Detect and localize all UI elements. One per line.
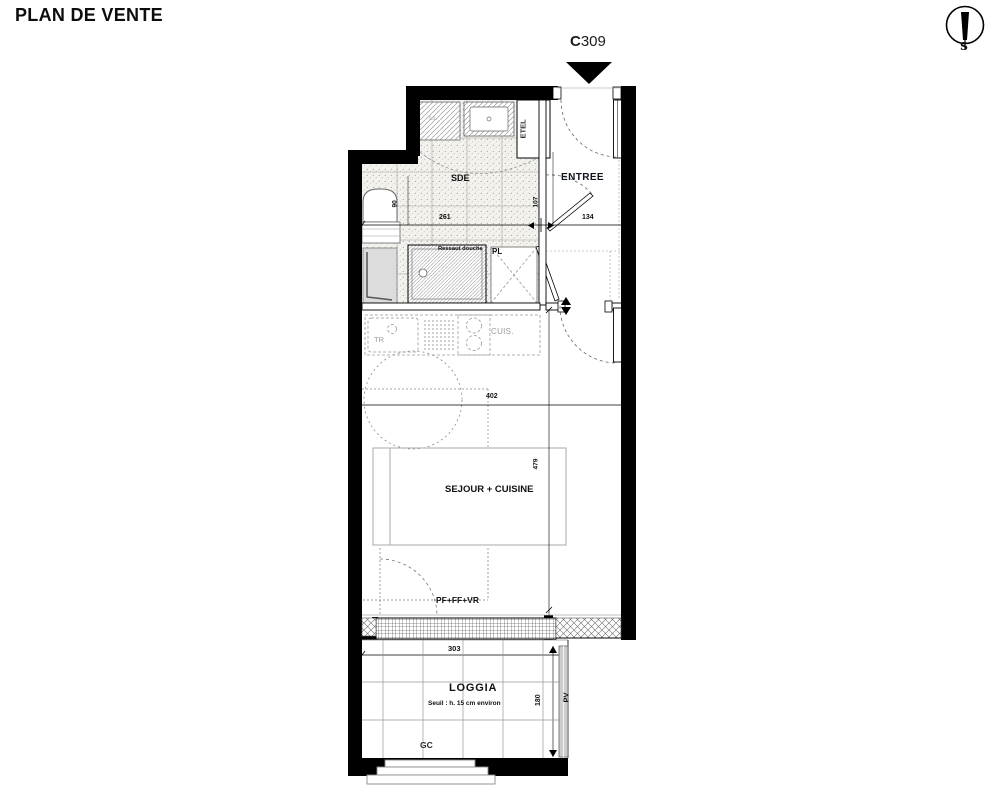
dimension-sejour-depth: 479	[534, 459, 541, 470]
unit-label: C309	[570, 34, 606, 49]
entrance-door-frame-left	[553, 87, 561, 99]
unit-entrance-triangle	[566, 62, 612, 84]
unit-prefix: C	[570, 33, 581, 50]
room-label-sejour-cuisine: SEJOUR + CUISINE	[445, 485, 533, 495]
dimension-sejour-width: 402	[486, 393, 498, 400]
window-band	[376, 618, 556, 639]
dimension-sde-width: 261	[439, 214, 451, 221]
wall-hatch-left	[362, 618, 376, 636]
entrance-door	[561, 100, 622, 158]
dimension-entree-depth: 107	[534, 197, 541, 208]
plan-de-vente-page: PLAN DE VENTE C309 S SDE ENTREE SEJOUR +…	[0, 0, 992, 800]
compass-south-label: S	[960, 41, 968, 52]
kitchen-zone-boundary	[362, 389, 488, 448]
wall-hatch-right	[556, 618, 621, 638]
shower-screen-panel	[363, 248, 397, 303]
table	[364, 351, 462, 449]
dimension-loggia-depth: 180	[535, 694, 542, 706]
loggia-threshold-note: Seuil : h. 15 cm environ	[428, 701, 501, 708]
wc-toilet	[362, 189, 400, 243]
washing-machine-label: LL	[429, 114, 437, 122]
dimension-wc-width: 90	[393, 200, 400, 207]
guardrail-label: GC	[420, 741, 433, 750]
dimension-entree-width: 134	[582, 214, 594, 221]
sejour-door	[560, 306, 622, 363]
privacy-screen-label: PV	[563, 692, 571, 702]
room-label-sde: SDE	[451, 174, 470, 183]
washing-machine-box	[417, 102, 460, 140]
shower-tray	[408, 245, 486, 303]
room-label-entree: ENTREE	[561, 173, 604, 183]
window-type-label: PF+FF+VR	[436, 596, 479, 605]
shower-step-label: Ressaut douche	[438, 247, 483, 253]
entrance-door-frame-right	[613, 87, 621, 99]
room-label-loggia: LOGGIA	[449, 683, 497, 694]
page-title: PLAN DE VENTE	[15, 6, 163, 24]
closet-label: PL	[492, 248, 502, 256]
kitchen-unit-label: CUIS.	[491, 328, 514, 336]
technical-duct-label: ETEL	[520, 119, 528, 138]
dimension-loggia-width: 303	[448, 645, 461, 653]
sorting-bin-label: TR	[374, 336, 384, 344]
kitchen-drainer	[423, 318, 455, 352]
unit-number: 309	[581, 33, 606, 50]
washbasin	[464, 102, 514, 136]
pf-door-swing	[363, 548, 488, 616]
floor-plan-drawing	[0, 0, 992, 800]
